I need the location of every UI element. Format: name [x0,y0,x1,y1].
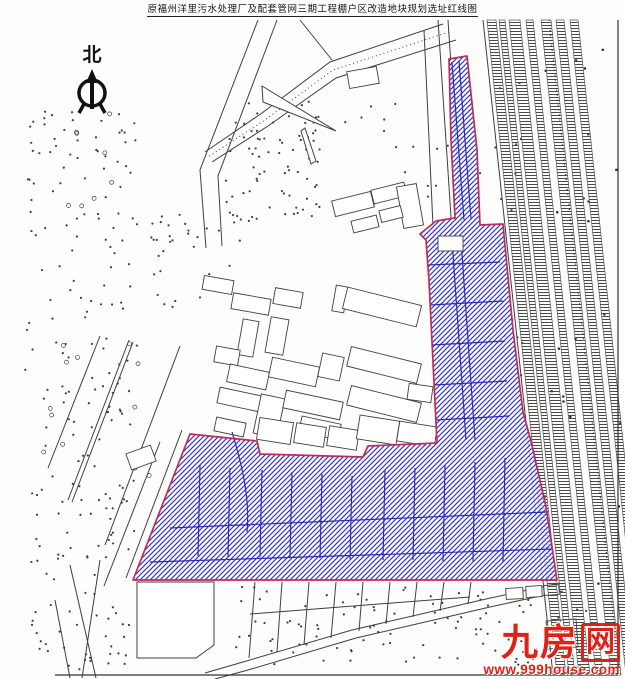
watermark-name-boxed: 网 [581,623,620,662]
north-label: 北 [70,46,114,65]
map-title: 原福州洋里污水处理厂及配套管网三期工程棚户区改造地块规划选址红线图 [0,1,625,17]
watermark-logo: 九房网 [483,623,620,662]
redline-area [133,56,557,580]
map-title-text: 原福州洋里污水处理厂及配套管网三期工程棚户区改造地块规划选址红线图 [147,1,477,17]
watermark-name-left: 九房 [501,624,579,661]
watermark-url: www.999house.com [483,662,620,677]
planning-map: 原福州洋里污水处理厂及配套管网三期工程棚户区改造地块规划选址红线图 北 九房网 … [0,0,625,679]
north-arrow-icon [70,65,114,117]
north-arrow: 北 [70,46,114,122]
watermark: 九房网 www.999house.com [483,623,620,677]
